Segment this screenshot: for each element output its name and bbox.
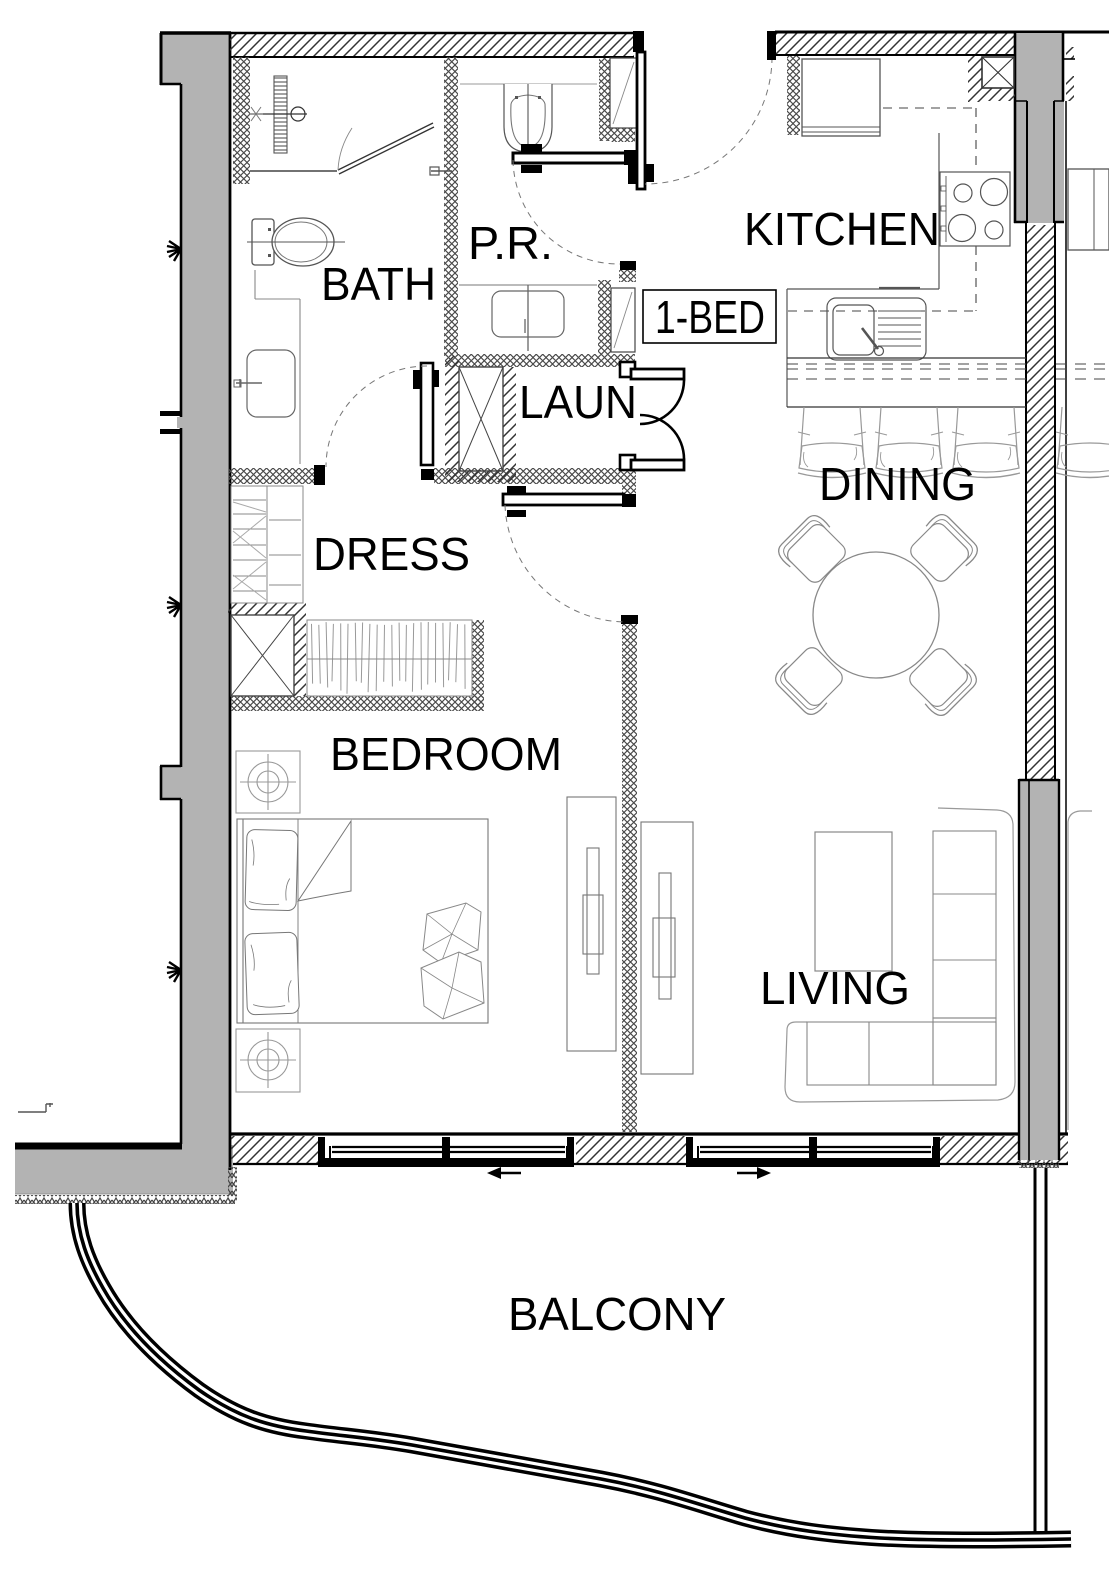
svg-text:P.R.: P.R. [468, 217, 553, 269]
svg-text:BATH: BATH [321, 258, 436, 310]
svg-text:LIVING: LIVING [760, 962, 910, 1014]
svg-text:KITCHEN: KITCHEN [744, 203, 940, 255]
svg-text:DINING: DINING [819, 458, 976, 510]
svg-text:LAUN: LAUN [519, 376, 637, 428]
svg-text:BALCONY: BALCONY [508, 1288, 726, 1340]
svg-text:1-BED: 1-BED [655, 291, 765, 343]
svg-text:BEDROOM: BEDROOM [330, 728, 562, 780]
svg-text:DRESS: DRESS [313, 528, 470, 580]
